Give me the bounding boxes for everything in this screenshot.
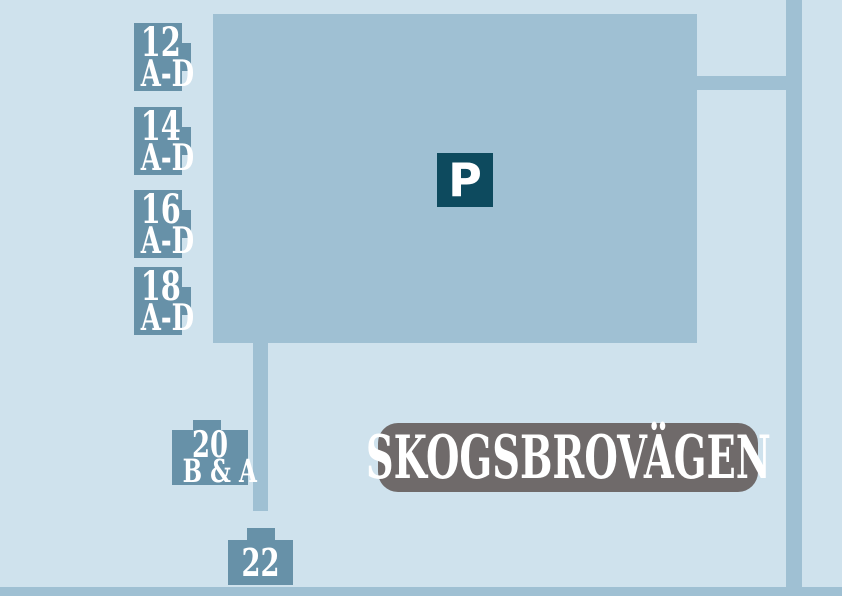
marker-letters: A-D [141,143,176,173]
building-marker-22: 22 [228,540,293,585]
street-name-text: SKOGSBROVÄGEN [366,423,771,493]
site-map-page: { "map": { "street_label": "SKOGSBROVÄGE… [0,0,842,596]
parking-icon: P [437,153,493,207]
marker-tab [247,528,275,540]
marker-letters: A-D [141,226,176,256]
parking-letter: P [448,153,482,207]
marker-letters: A-D [141,59,176,89]
building-marker-12: 12 A-D [134,23,182,91]
building-marker-14: 14 A-D [134,107,182,175]
building-marker-16: 16 A-D [134,190,182,258]
building-marker-20: 20 B & A [172,430,248,485]
street-name-label: SKOGSBROVÄGEN [378,423,758,492]
marker-number: 22 [237,540,284,585]
road-vertical-right [786,0,802,596]
marker-letters: A-D [141,303,176,333]
parking-area: P [213,14,697,343]
marker-letters: B & A [183,458,238,484]
road-connector-top [697,76,787,90]
road-bottom [0,587,842,596]
building-marker-18: 18 A-D [134,267,182,335]
